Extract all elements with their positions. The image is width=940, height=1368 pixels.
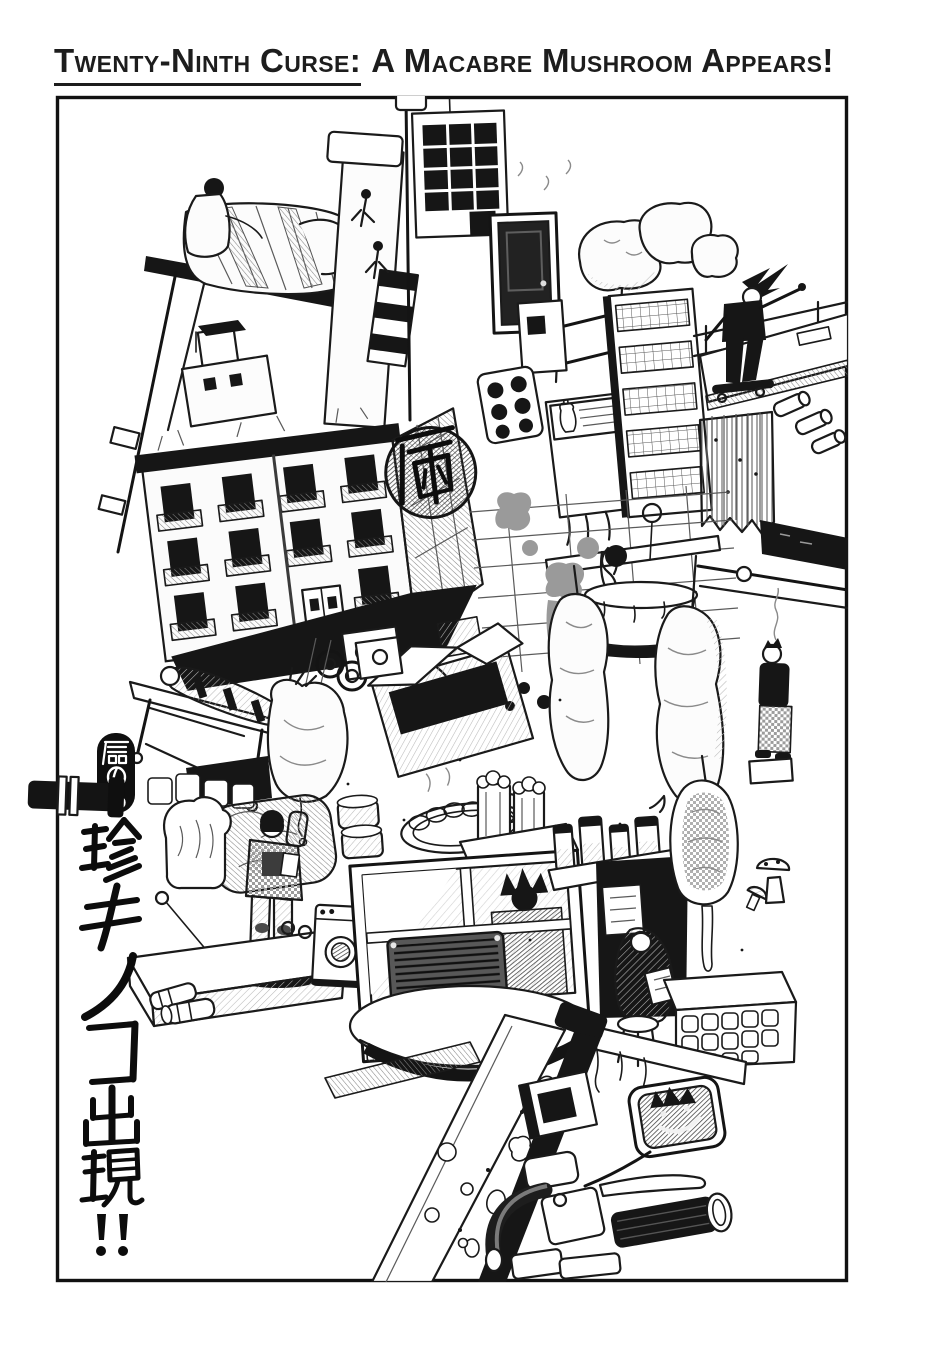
manga-illustration: 29 <box>0 0 940 1368</box>
manga-page: Twenty-Ninth Curse:A Macabre Mushroom Ap… <box>0 0 940 1368</box>
corner-shop <box>518 300 567 373</box>
speaker-plate <box>477 366 544 445</box>
left-pipe <box>27 774 124 817</box>
slat-curtain <box>700 412 774 534</box>
lattice-building <box>603 289 712 518</box>
canister-stack <box>337 794 383 859</box>
rear-view-mirror <box>627 1075 727 1158</box>
